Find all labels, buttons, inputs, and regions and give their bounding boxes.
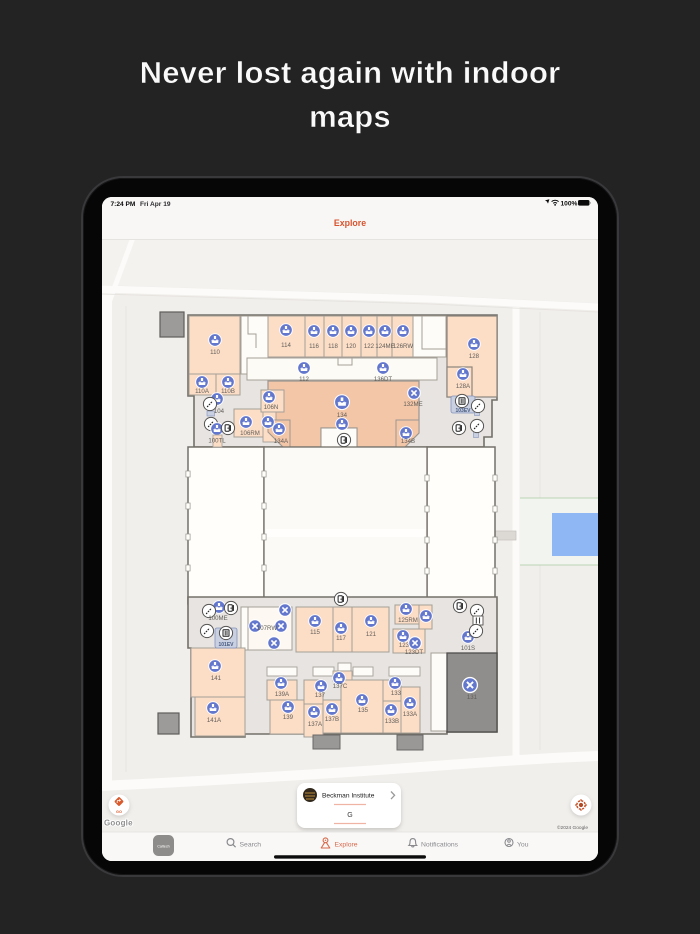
svg-text:103EV: 103EV — [455, 408, 471, 414]
svg-text:128: 128 — [469, 353, 480, 360]
svg-text:100TL: 100TL — [208, 438, 226, 445]
svg-text:You: You — [517, 841, 529, 848]
svg-text:Caltech: Caltech — [157, 845, 170, 849]
svg-text:134A: 134A — [274, 438, 289, 445]
svg-text:136DT: 136DT — [374, 376, 393, 383]
svg-text:110: 110 — [210, 349, 220, 356]
svg-text:133A: 133A — [403, 711, 418, 718]
svg-text:Notifications: Notifications — [421, 841, 459, 848]
svg-text:122: 122 — [364, 343, 375, 350]
svg-text:133: 133 — [391, 690, 402, 697]
svg-text:Beckman Institute: Beckman Institute — [322, 793, 375, 800]
svg-text:132ME: 132ME — [403, 401, 422, 408]
svg-text:106RM: 106RM — [240, 430, 260, 437]
svg-text:101EV: 101EV — [218, 642, 234, 648]
svg-text:134B: 134B — [401, 438, 415, 445]
svg-text:121: 121 — [366, 631, 377, 638]
svg-text:135: 135 — [358, 707, 369, 714]
svg-text:125RM: 125RM — [398, 617, 418, 624]
svg-text:118: 118 — [328, 343, 338, 350]
svg-text:123DT: 123DT — [405, 649, 424, 656]
svg-text:Google: Google — [104, 819, 133, 828]
svg-text:107RW: 107RW — [257, 625, 277, 632]
svg-text:110B: 110B — [221, 388, 235, 395]
svg-text:101S: 101S — [461, 645, 475, 652]
svg-text:100ME: 100ME — [208, 615, 227, 622]
svg-text:141A: 141A — [207, 717, 222, 724]
svg-text:133B: 133B — [385, 718, 399, 725]
svg-text:100%: 100% — [561, 201, 578, 208]
svg-text:126RW: 126RW — [393, 343, 413, 350]
svg-text:110A: 110A — [195, 388, 210, 395]
svg-text:GO: GO — [116, 810, 122, 814]
svg-text:112: 112 — [299, 376, 309, 383]
svg-text:137: 137 — [315, 692, 326, 699]
svg-text:131: 131 — [467, 694, 478, 701]
svg-text:106N: 106N — [264, 404, 279, 411]
svg-text:115: 115 — [310, 629, 320, 636]
svg-text:124ME: 124ME — [375, 343, 394, 350]
svg-text:114: 114 — [281, 342, 291, 349]
svg-text:139: 139 — [283, 714, 294, 721]
svg-text:141: 141 — [211, 675, 222, 682]
svg-text:139A: 139A — [275, 691, 290, 698]
svg-text:137C: 137C — [333, 683, 348, 690]
svg-text:120: 120 — [346, 343, 357, 350]
svg-text:116: 116 — [309, 343, 319, 350]
svg-text:128A: 128A — [456, 383, 471, 390]
svg-text:Search: Search — [240, 841, 262, 848]
svg-text:Explore: Explore — [335, 841, 358, 848]
svg-text:©2024 Google: ©2024 Google — [557, 824, 588, 831]
svg-text:G: G — [347, 812, 352, 819]
svg-text:Explore: Explore — [334, 218, 366, 228]
svg-text:Fri Apr 19: Fri Apr 19 — [140, 201, 171, 208]
svg-text:123: 123 — [399, 642, 410, 649]
svg-text:137B: 137B — [325, 716, 339, 723]
svg-text:104: 104 — [214, 408, 225, 415]
svg-text:137A: 137A — [308, 721, 323, 728]
svg-text:7:24 PM: 7:24 PM — [111, 201, 136, 208]
svg-text:117: 117 — [336, 635, 346, 642]
